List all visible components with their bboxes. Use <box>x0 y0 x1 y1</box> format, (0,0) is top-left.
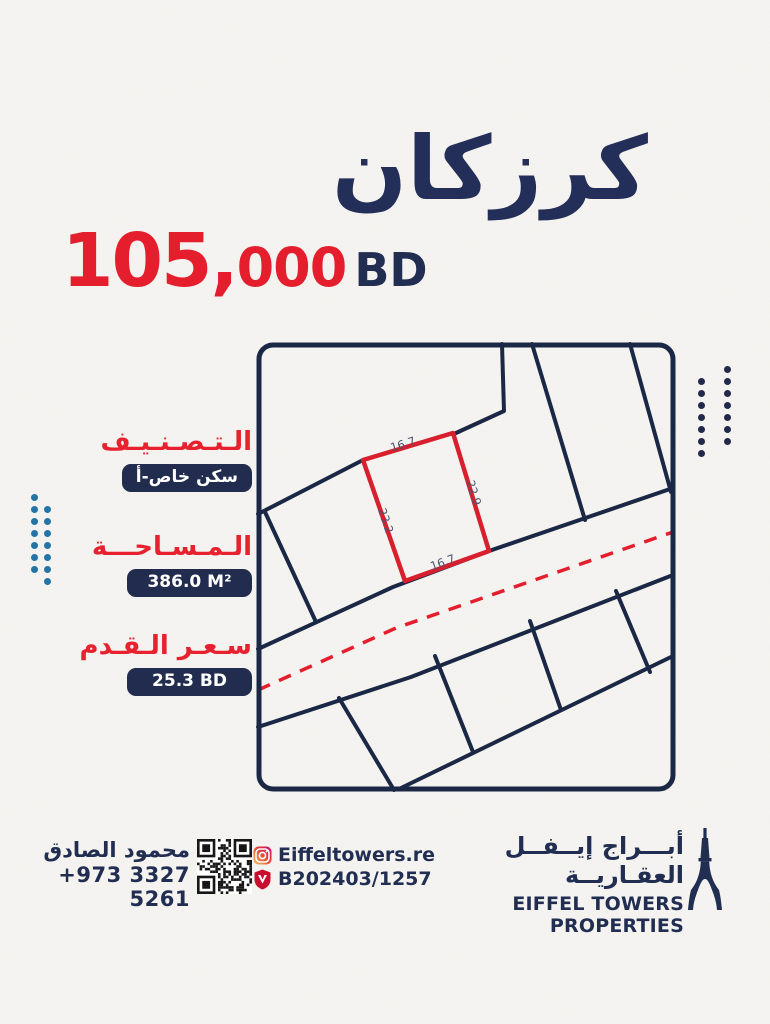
eiffel-tower-icon <box>688 828 722 912</box>
price-per-foot-label: سـعـر الـقـدم <box>58 632 252 661</box>
classification-label: الـتـصـنـيـف <box>58 428 252 457</box>
dots-decoration-left <box>31 494 65 590</box>
detail-row-area: الـمـسـاحـــة 386.0 M² <box>58 533 252 597</box>
detail-row-price-per-foot: سـعـر الـقـدم 25.3 BD <box>58 632 252 696</box>
price-amount-minor: 000 <box>237 236 347 299</box>
area-value-pill: 386.0 M² <box>127 569 252 597</box>
dimension-label-top: 16.7 <box>389 434 418 455</box>
company-block: أبـــراج إيــفــل العقـاريــة EIFFEL TOW… <box>384 832 684 937</box>
license-badge-icon <box>253 869 272 890</box>
area-label: الـمـسـاحـــة <box>58 533 252 562</box>
qr-code <box>197 839 252 894</box>
instagram-icon <box>253 846 272 865</box>
page-title: كرزكان <box>280 118 700 219</box>
classification-value-pill: سكن خاص-أ <box>122 464 252 492</box>
map-border <box>259 345 673 789</box>
price-currency: BD <box>354 243 427 297</box>
plot-map: 16.7 22.9 23.2 16.7 <box>256 342 676 792</box>
flyer-page: كرزكان 105,000BD الـتـصـنـيـف سكن خاص-أ … <box>0 0 770 1024</box>
company-name-arabic: أبـــراج إيــفــل العقـاريــة <box>384 832 684 890</box>
dots-decoration-right <box>698 366 732 462</box>
dimension-label-right: 22.9 <box>463 479 484 508</box>
parcel-lines <box>258 344 673 790</box>
highlighted-plot <box>363 433 489 581</box>
agent-block: محمود الصادق +973 3327 5261 <box>0 838 190 911</box>
road-centerline <box>258 532 673 690</box>
price: 105,000BD <box>62 224 428 298</box>
detail-row-classification: الـتـصـنـيـف سكن خاص-أ <box>58 428 252 492</box>
footer: محمود الصادق +973 3327 5261 <box>0 826 770 916</box>
company-name-english: EIFFEL TOWERS PROPERTIES <box>384 893 684 937</box>
price-per-foot-value-pill: 25.3 BD <box>127 668 252 696</box>
price-amount-major: 105, <box>62 218 237 304</box>
road-top-edge <box>258 488 673 649</box>
dimension-label-left: 23.2 <box>375 506 397 535</box>
agent-phone: +973 3327 5261 <box>0 863 190 911</box>
agent-name: محمود الصادق <box>0 838 190 863</box>
road-bottom-edge <box>258 575 673 727</box>
